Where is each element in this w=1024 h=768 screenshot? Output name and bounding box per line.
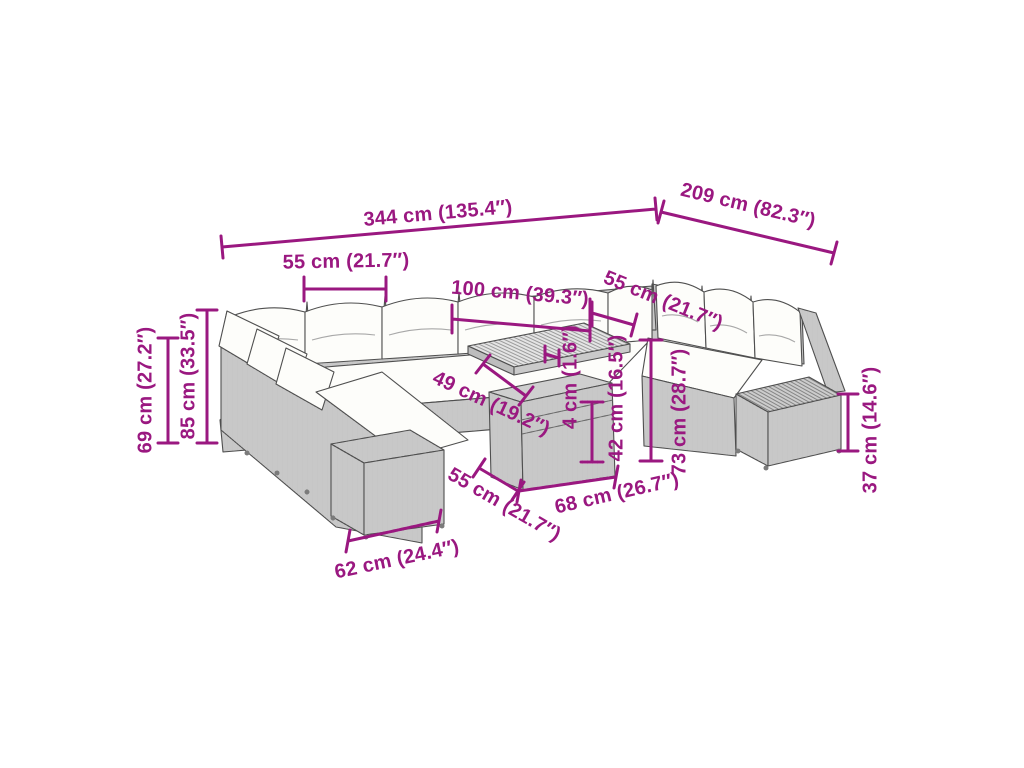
left-footstool xyxy=(331,430,444,535)
dim-arm-height-label: 69 cm (27.2″) xyxy=(135,327,158,454)
dim-back-height-label: 85 cm (33.5″) xyxy=(178,313,201,440)
dim-tabletop-thickness-label: 4 cm (1.6″) xyxy=(560,325,583,429)
dim-footstool-height-label: 37 cm (14.6″) xyxy=(860,367,883,494)
dim-table-height-label: 42 cm (16.5″) xyxy=(606,335,629,462)
dimension-diagram: 344 cm (135.4″) 209 cm (82.3″) 55 cm (21… xyxy=(0,0,1024,768)
dim-seat-width-label: 55 cm (21.7″) xyxy=(282,249,409,274)
dim-sofa-height-label: 73 cm (28.7″) xyxy=(669,349,692,476)
